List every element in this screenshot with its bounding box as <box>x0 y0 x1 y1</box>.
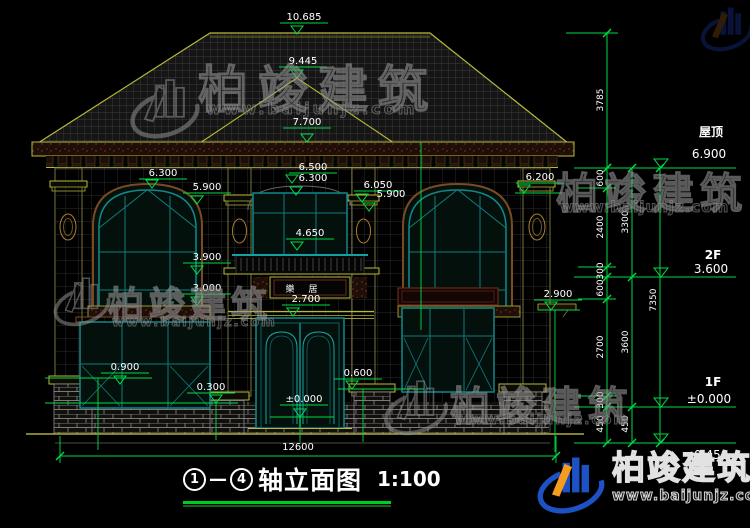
balcony-rail <box>232 255 368 274</box>
elevation-text: 0.900 <box>111 362 140 373</box>
dimension-text: 3600 <box>621 330 631 353</box>
level-triangle <box>654 268 668 277</box>
elevation-text: 4.650 <box>296 228 325 239</box>
level-name: 屋顶 <box>699 125 723 139</box>
level-name: 2F <box>705 248 722 262</box>
brand-logo <box>534 448 608 522</box>
entrance-door <box>248 318 352 429</box>
level-line: 屋顶6.900 <box>648 125 736 168</box>
window-center-2f <box>248 186 352 255</box>
title-underline <box>183 505 391 507</box>
drawing-title-block: 1 — 4 轴立面图 1:100 <box>183 461 441 507</box>
elevation-text: 7.700 <box>293 117 322 128</box>
dimension-text: 450 <box>596 415 606 432</box>
dimension-text: 300 <box>596 262 606 279</box>
dimension-text: 450 <box>621 415 631 432</box>
axis-dash: — <box>209 469 227 490</box>
elevation-text: 2.900 <box>544 289 573 300</box>
level-line: 1F±0.000 <box>648 375 736 407</box>
overall-dimension-text: 12600 <box>282 442 314 453</box>
elevation-marker: 10.685 <box>280 12 328 34</box>
elevation-text: 6.300 <box>149 168 178 179</box>
level-triangle <box>654 398 668 407</box>
drawing-title: 轴立面图 <box>258 461 362 497</box>
brand-block: 柏竣建筑 www.baijunjz.com <box>534 448 750 522</box>
elevation-text: ±0.000 <box>285 394 322 405</box>
plaque-character: 樂 <box>285 283 294 295</box>
elevation-text: 9.445 <box>289 56 318 67</box>
elevation-text: 3.000 <box>193 283 222 294</box>
dimension-text: 3785 <box>596 89 606 112</box>
elevation-text: 5.900 <box>377 189 406 200</box>
dimension-text: 600 <box>596 169 606 186</box>
elevation-text: 6.300 <box>299 173 328 184</box>
title-underline <box>183 501 391 504</box>
dimension-text: 2700 <box>596 335 606 358</box>
brand-name: 柏竣建筑 <box>612 448 750 488</box>
dimension-text: 7350 <box>649 288 659 311</box>
window-right-1f <box>398 288 498 392</box>
window-left-1f <box>76 317 214 408</box>
dimension-text: 600 <box>596 279 606 296</box>
axis-bubble-end: 4 <box>230 468 253 491</box>
elevation-text: 3.900 <box>193 252 222 263</box>
elevation-text: 5.900 <box>193 182 222 193</box>
axis-bubble-start: 1 <box>183 468 206 491</box>
level-name: 1F <box>705 375 722 389</box>
elevation-text: 0.600 <box>344 368 373 379</box>
elevation-text: 2.700 <box>292 294 321 305</box>
elevation-text: 10.685 <box>287 12 322 23</box>
level-line: 2F3.600 <box>648 248 736 277</box>
elevation-text: 6.200 <box>526 172 555 183</box>
brand-url: www.baijunjz.com <box>612 488 750 504</box>
dimension-text: 300 <box>596 391 606 408</box>
drawing-scale: 1:100 <box>377 467 441 491</box>
level-value: ±0.000 <box>687 392 731 406</box>
level-value: 3.600 <box>694 262 728 276</box>
dimension-text: 2400 <box>596 215 606 238</box>
plaque-character: 居 <box>308 284 317 295</box>
elevation-text: 6.500 <box>299 162 328 173</box>
elevation-text: 0.300 <box>197 382 226 393</box>
level-value: 6.900 <box>692 147 726 161</box>
dimension-text: 3300 <box>621 210 631 233</box>
cad-elevation-screenshot: 3785600240030060027003004503300360045073… <box>0 0 750 528</box>
